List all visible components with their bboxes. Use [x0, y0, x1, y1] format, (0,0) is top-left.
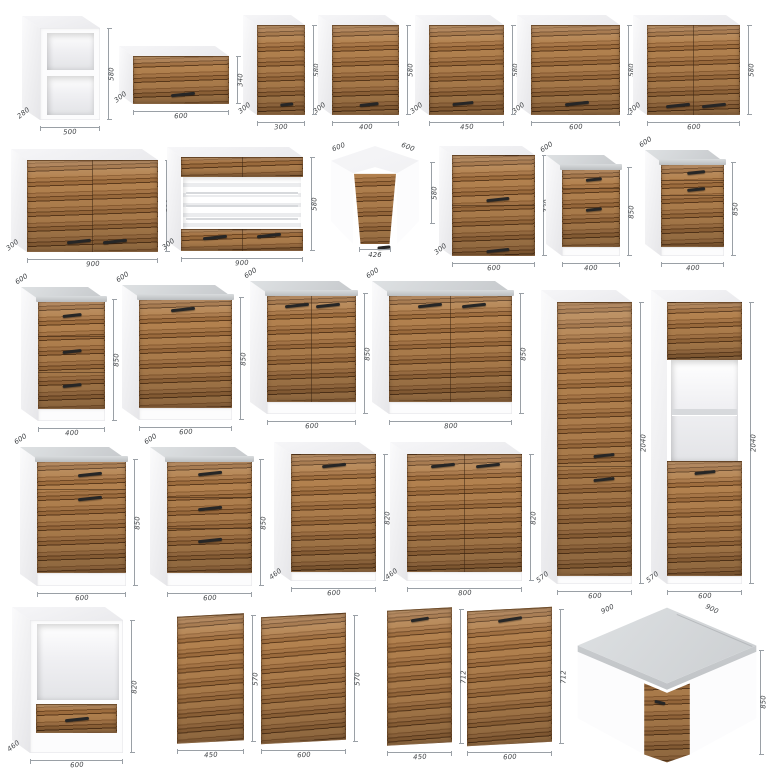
cabinet-panel [257, 25, 305, 115]
cabinet-panel [672, 409, 737, 415]
cabinet-panel [667, 302, 742, 360]
dim-height-label: 580 [749, 63, 756, 77]
dim-depth-label: 460 [6, 740, 21, 754]
wall-cabinet-450-front [429, 25, 504, 115]
dim-door-label: 426 [368, 252, 382, 259]
tall-oven-housing-600: 6002040570 [651, 290, 758, 602]
dim-depth-label: 600 [638, 136, 653, 149]
dim-width-left-label: 600 [331, 142, 346, 153]
base-cabinet-3drawer-600-side-face [150, 447, 168, 587]
cabinet-panel [557, 302, 632, 576]
dim-width-label: 600 [75, 595, 89, 602]
cabinet-panel [37, 573, 126, 586]
worktop-edge [165, 456, 254, 462]
corner-wall-cabinet-600: 600600580426 [325, 146, 443, 272]
door-split [242, 157, 243, 177]
dim-height-label: 580 [408, 63, 415, 77]
dim-width-label: 450 [413, 754, 427, 761]
front-panel-450x570: 450570 [177, 615, 260, 760]
door-split [661, 180, 724, 181]
base-cabinet-3drawer-400-side-face [21, 287, 39, 422]
oven-housing-base-600-front [30, 620, 123, 753]
door-split [693, 25, 694, 115]
base-cabinet-3drawer-400-front [38, 299, 105, 421]
dim-width-label: 400 [65, 430, 79, 437]
dim-height-label: 820 [531, 511, 538, 525]
wall-open-shelf-unit-500: 500580280 [22, 16, 116, 138]
dim-height-label: 850 [629, 205, 636, 219]
worktop-edge [137, 294, 234, 300]
door-split [92, 160, 93, 252]
cabinet-panel [562, 247, 620, 256]
door-split [242, 229, 243, 251]
base-cabinet-2door-600-side-face [250, 281, 268, 415]
front-panel-600x712-front [467, 607, 552, 746]
base-cabinet-600-side-face [122, 285, 140, 421]
wall-cabinet-400: 400580300 [318, 15, 415, 133]
dim-width-label: 600 [305, 423, 319, 430]
dim-height-label: 580 [432, 186, 439, 200]
tall-oven-housing-600-side-face [651, 290, 668, 585]
tall-oven-housing-600-front [667, 302, 742, 584]
dim-height-label: 820 [132, 680, 139, 694]
dim-height-label: 2040 [641, 434, 648, 452]
dim-width-label: 450 [204, 752, 218, 759]
base-cabinet-2drawer-door-400-side-face [645, 150, 662, 257]
wall-cabinet-300-front [257, 25, 305, 115]
base-cabinet-2drawer-door-400-front [661, 162, 724, 256]
base-cabinet-drawer-door-600: 600850600 [20, 447, 142, 604]
door-split [311, 293, 312, 402]
cabinet-panel [37, 624, 119, 700]
dim-depth-label: 300 [5, 239, 20, 253]
base-cabinet-drawer-door-400: 400850600 [546, 155, 636, 274]
dim-height-label: 712 [561, 670, 568, 684]
base-cabinet-drawer-door-400-side-face [546, 155, 563, 257]
dim-width-label: 600 [569, 124, 583, 131]
dim-height-label: 850 [521, 347, 528, 361]
cabinet-panel [47, 33, 94, 71]
dim-width-label: 600 [487, 265, 501, 272]
base-cabinet-2door-800-side-face [372, 281, 390, 415]
dim-height-label: 850 [761, 696, 768, 710]
dim-height-label: 850 [114, 353, 121, 367]
door-split [167, 528, 252, 529]
base-cabinet-no-top-600: 600820460 [274, 442, 392, 599]
dim-width-label: 400 [584, 265, 598, 272]
dim-depth-label: 280 [16, 107, 31, 121]
base-cabinet-2drawer-door-400: 400850600 [645, 150, 740, 274]
dim-width-label: 600 [588, 593, 602, 600]
door-split [38, 372, 105, 373]
dim-height-label: 570 [253, 672, 260, 686]
cabinet-panel [557, 576, 632, 584]
wall-cabinet-2door-600-front [647, 25, 740, 115]
dim-depth-label: 600 [14, 273, 29, 286]
front-panel-450x712: 450712 [387, 609, 468, 762]
worktop-edge [387, 290, 514, 296]
worktop-edge [659, 159, 726, 165]
door-split [562, 188, 620, 189]
door-split [167, 497, 252, 498]
base-cabinet-drawer-door-600-front [37, 459, 126, 586]
dim-height-label: 580 [312, 197, 319, 211]
worktop-edge [265, 290, 358, 296]
oven-housing-base-600-top-face [12, 607, 124, 621]
wall-cabinet-600x720-side-face [439, 146, 453, 257]
cabinet-panel [407, 572, 522, 581]
dim-width-label: 900 [235, 260, 249, 267]
base-cabinet-3drawer-600-front [167, 459, 252, 586]
cabinet-panel [186, 192, 298, 194]
front-panel-600x570-front [261, 613, 346, 744]
base-cabinet-no-top-600-side-face [274, 442, 292, 582]
dim-width-label: 600 [698, 593, 712, 600]
base-cabinet-2door-600-front [267, 293, 356, 414]
cabinet-panel [167, 459, 252, 573]
base-cabinet-no-top-2door-800-side-face [390, 442, 408, 582]
dim-width-label: 400 [359, 124, 373, 131]
dim-line-door [359, 249, 391, 250]
dim-width-right-label: 900 [704, 603, 719, 615]
front-panel-600x712: 600712 [467, 609, 568, 762]
wall-display-cabinet-900-front [181, 157, 303, 251]
dim-width-label: 800 [458, 590, 472, 597]
dim-width-label: 600 [70, 762, 84, 768]
cabinet-panel [467, 607, 552, 746]
front-panel-450x712-front [387, 607, 452, 745]
wall-cabinet-2door-900-side-face [11, 149, 28, 253]
dim-height-label: 580 [109, 67, 116, 81]
tall-pantry-600-side-face [541, 290, 558, 585]
tall-pantry-600: 6002040570 [541, 290, 648, 602]
cabinet-panel [139, 297, 232, 408]
front-panel-600x570: 600570 [261, 615, 362, 760]
wall-flip-cabinet-600x340-front [133, 56, 229, 104]
dim-height-label: 850 [261, 516, 268, 530]
wall-cabinet-600x720: 600720300 [439, 146, 551, 274]
door-split [38, 336, 105, 337]
wall-cabinet-600x720-front [452, 155, 535, 256]
cabinet-panel [389, 402, 512, 414]
base-cabinet-drawer-door-400-front [562, 167, 620, 256]
cabinet-panel [661, 162, 724, 247]
dim-height-label: 850 [135, 516, 142, 530]
tall-pantry-600-front [557, 302, 632, 584]
door-split [464, 454, 465, 572]
base-cabinet-2door-800: 800850600 [372, 281, 528, 432]
wall-display-cabinet-900-side-face [167, 147, 182, 252]
dim-width-label: 600 [179, 429, 193, 436]
worktop-edge [36, 296, 107, 302]
wall-display-cabinet-900: 900580300 [167, 147, 319, 269]
dim-height-label: 570 [355, 672, 362, 686]
cabinet-panel [332, 25, 399, 115]
dim-height-label: 850 [241, 352, 248, 366]
base-cabinet-no-top-600-front [291, 454, 376, 581]
dim-width-label: 600 [174, 113, 188, 120]
cabinet-panel [291, 454, 376, 572]
cabinet-panel [261, 613, 346, 744]
cabinet-panel [186, 218, 298, 220]
wall-open-shelf-unit-500-front [40, 28, 100, 120]
base-cabinet-600: 600850600 [122, 285, 248, 438]
cabinet-panel [186, 205, 298, 207]
base-cabinet-3drawer-400: 400850600 [21, 287, 121, 439]
dim-width-label: 300 [274, 124, 288, 131]
dim-width-right-label: 600 [400, 142, 415, 153]
cabinet-panel [667, 461, 742, 575]
cabinet-panel [183, 177, 300, 230]
base-cabinet-600-front [139, 297, 232, 420]
door-split [37, 489, 126, 490]
wall-cabinet-2door-900-front [27, 160, 158, 252]
dim-width-left-label: 900 [600, 603, 615, 615]
dim-width-label: 600 [203, 595, 217, 602]
dim-width-label: 500 [63, 129, 77, 136]
wall-cabinet-2door-900: 900580300 [11, 149, 174, 270]
dim-height-label: 850 [733, 202, 740, 216]
oven-housing-base-600: 600820460 [12, 607, 139, 768]
cabinet-panel [661, 247, 724, 256]
dim-height-label: 2040 [751, 434, 758, 452]
dim-width-label: 450 [460, 124, 474, 131]
wall-cabinet-600: 600580300 [517, 15, 636, 133]
door-split [557, 466, 632, 467]
wall-cabinet-400-front [332, 25, 399, 115]
wall-cabinet-300: 300580300 [243, 15, 321, 133]
dim-width-label: 600 [687, 124, 701, 131]
base-cabinet-no-top-2door-800: 800820460 [390, 442, 538, 599]
kitchen-cabinet-catalog: 5005802806003403003005803004005803004505… [0, 0, 768, 768]
corner-base-cabinet-900: 900900850 [572, 606, 768, 768]
wall-cabinet-450: 450580300 [415, 15, 520, 133]
dim-depth-label: 600 [115, 271, 130, 284]
oven-housing-base-600-side-face [12, 607, 31, 754]
cabinet-panel [267, 402, 356, 414]
cabinet-panel [387, 607, 452, 745]
cabinet-panel [139, 408, 232, 420]
base-cabinet-3drawer-600: 600850600 [150, 447, 268, 604]
cabinet-panel [167, 573, 252, 586]
cabinet-panel [47, 76, 94, 116]
base-cabinet-no-top-2door-800-front [407, 454, 522, 581]
dim-depth-label: 460 [268, 568, 283, 582]
dim-width-label: 600 [503, 754, 517, 761]
dim-width-label: 800 [444, 423, 458, 430]
dim-width-label: 900 [86, 261, 100, 268]
base-cabinet-2door-600: 600850600 [250, 281, 372, 432]
dim-width-label: 400 [686, 265, 700, 272]
cabinet-panel [177, 613, 244, 744]
wall-cabinet-600-front [531, 25, 620, 115]
door-split [661, 195, 724, 196]
worktop-edge [560, 164, 622, 170]
door-split [450, 293, 451, 402]
worktop-edge [35, 456, 128, 462]
dim-width-label: 600 [297, 752, 311, 759]
cabinet-panel [291, 572, 376, 581]
wall-cabinet-2door-600: 600580300 [633, 15, 756, 133]
cabinet-panel [38, 409, 105, 421]
dim-height-label: 850 [365, 347, 372, 361]
door-split [452, 205, 535, 206]
base-cabinet-drawer-door-600-side-face [20, 447, 38, 587]
dim-width-label: 600 [327, 590, 341, 597]
base-cabinet-2door-800-front [389, 293, 512, 414]
front-panel-450x570-front [177, 613, 244, 744]
cabinet-panel [667, 576, 742, 584]
dim-depth-label: 600 [13, 433, 28, 446]
cabinet-panel [133, 56, 229, 104]
wall-flip-cabinet-600x340: 600340300 [119, 46, 245, 122]
